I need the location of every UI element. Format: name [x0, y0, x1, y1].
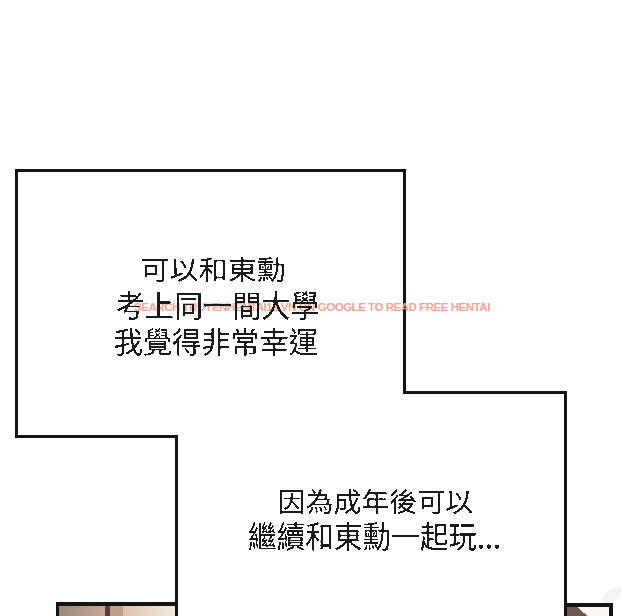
svg-text:SEARCH TRUYENHENTAI18.VN ON GO: SEARCH TRUYENHENTAI18.VN ON GOOGLE TO RE… — [134, 300, 490, 313]
